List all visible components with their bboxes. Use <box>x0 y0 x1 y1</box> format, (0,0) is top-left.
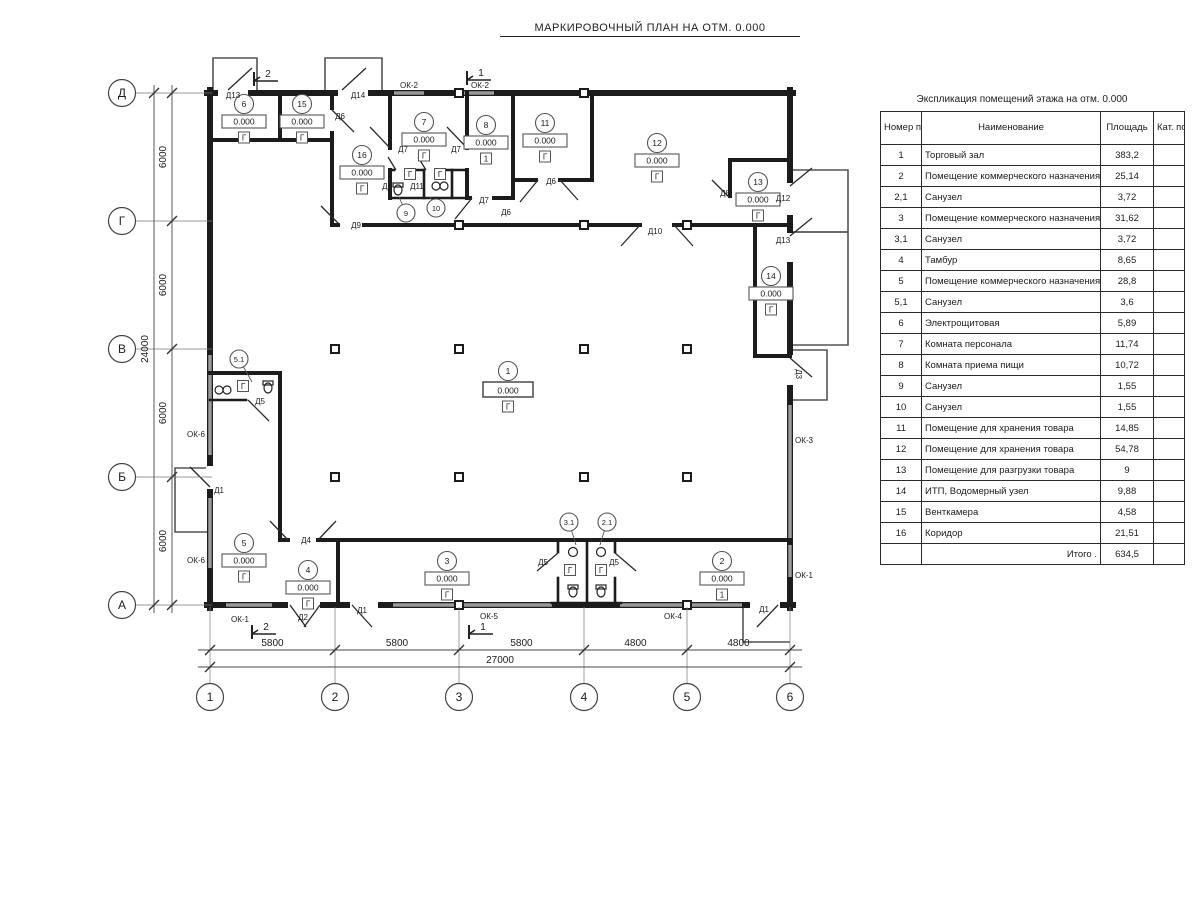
room-number: 1 <box>506 366 511 376</box>
sink-icon <box>432 182 448 190</box>
cell-area: 21,51 <box>1101 523 1154 544</box>
door-label: Д6 <box>546 177 556 186</box>
dim-text: 6000 <box>158 401 169 424</box>
door-label: Д12 <box>776 194 791 203</box>
cell-name: Помещение для разгрузки товара <box>922 460 1101 481</box>
room-number: 15 <box>297 99 307 109</box>
category-value: Г <box>599 566 604 575</box>
room-number: 12 <box>652 138 662 148</box>
cell-area: 9 <box>1101 460 1154 481</box>
door-label: Д9 <box>351 221 361 230</box>
room-marker: 10.000Г <box>483 362 533 413</box>
table-row: 8Комната приема пищи10,72 <box>881 355 1185 376</box>
table-row: 11Помещение для хранения товара14,85 <box>881 418 1185 439</box>
room-schedule: Экспликация помещений этажа на отм. 0.00… <box>880 94 1164 565</box>
dim-text: 24000 <box>140 335 151 363</box>
window-label: ОК-6 <box>187 430 206 439</box>
dim-text: 4800 <box>727 638 750 649</box>
cell-area: 383,2 <box>1101 145 1154 166</box>
table-row: 3,1Санузел3,72 <box>881 229 1185 250</box>
cell-name: Помещение для хранения товара <box>922 439 1101 460</box>
door-label: Д10 <box>648 227 663 236</box>
cell-cat <box>1154 544 1185 565</box>
cell-name: Коридор <box>922 523 1101 544</box>
interior-walls <box>210 93 790 605</box>
cell-name: Санузел <box>922 397 1101 418</box>
door-label: Д14 <box>351 91 366 100</box>
axis-label: Д <box>118 86 126 100</box>
cell-num: 6 <box>881 313 922 334</box>
category-box: Г <box>596 565 607 576</box>
cell-name: Помещение коммерческого назначения <box>922 208 1101 229</box>
room-markers: 10.000Г20.000130.000Г40.000Г50.000Г60.00… <box>222 95 793 610</box>
toilet-icon <box>596 585 606 597</box>
category-value: 1 <box>484 155 489 164</box>
room-number: 7 <box>422 117 427 127</box>
room-number: 10 <box>432 204 440 213</box>
category-value: Г <box>242 134 247 143</box>
cell-cat <box>1154 355 1185 376</box>
cell-num: 3,1 <box>881 229 922 250</box>
room-number: 16 <box>357 150 367 160</box>
sanitary-fixtures <box>215 182 606 597</box>
cell-num: 10 <box>881 397 922 418</box>
cell-num <box>881 544 922 565</box>
door-label: Д4 <box>301 536 311 545</box>
table-row: 10Санузел1,55 <box>881 397 1185 418</box>
schedule-table: Номер помещ. Наименование Площадь Кат. п… <box>880 111 1185 565</box>
cell-area: 5,89 <box>1101 313 1154 334</box>
section-number: 1 <box>478 68 484 79</box>
room-marker: 50.000Г <box>222 534 266 583</box>
cell-area: 14,85 <box>1101 418 1154 439</box>
cell-name: Комната персонала <box>922 334 1101 355</box>
elevation-value: 0.000 <box>291 117 313 127</box>
room-marker: 60.000Г <box>222 95 266 144</box>
elevation-value: 0.000 <box>497 386 519 396</box>
room-marker-small: 9 <box>397 197 415 222</box>
cell-name: Помещение коммерческого назначения <box>922 166 1101 187</box>
cell-cat <box>1154 292 1185 313</box>
section-number: 2 <box>263 622 269 633</box>
cell-cat <box>1154 187 1185 208</box>
room-number: 14 <box>766 271 776 281</box>
cell-area: 8,65 <box>1101 250 1154 271</box>
cell-area: 25,14 <box>1101 166 1154 187</box>
cell-name: Санузел <box>922 376 1101 397</box>
door-label: Д3 <box>794 369 803 379</box>
table-row: 7Комната персонала11,74 <box>881 334 1185 355</box>
cell-name: Санузел <box>922 187 1101 208</box>
axis-label: А <box>118 598 126 612</box>
category-box: Г <box>435 169 446 180</box>
category-value: 1 <box>720 591 725 600</box>
elevation-value: 0.000 <box>534 136 556 146</box>
elevation-value: 0.000 <box>475 138 497 148</box>
total-value: 634,5 <box>1101 544 1154 565</box>
table-row: 12Помещение для хранения товара54,78 <box>881 439 1185 460</box>
table-row: 2Помещение коммерческого назначения25,14 <box>881 166 1185 187</box>
axis-label: 2 <box>332 690 339 704</box>
wall-openings <box>210 93 790 605</box>
room-marker-small: 5.1 <box>230 350 252 382</box>
window-label: ОК-4 <box>664 612 683 621</box>
category-box: Г <box>405 169 416 180</box>
cell-area: 3,72 <box>1101 187 1154 208</box>
toilet-icon <box>568 585 578 597</box>
axis-label: 6 <box>787 690 794 704</box>
room-marker: 70.000Г <box>402 113 446 162</box>
elevation-value: 0.000 <box>760 289 782 299</box>
room-marker-small: 10 <box>427 197 445 217</box>
room-number: 2 <box>720 556 725 566</box>
schedule-header-row: Номер помещ. Наименование Площадь Кат. п… <box>881 112 1185 145</box>
category-value: Г <box>300 134 305 143</box>
section-number: 1 <box>480 622 486 633</box>
section-number: 2 <box>265 69 271 80</box>
axis-label: Г <box>119 214 126 228</box>
table-row: 5Помещение коммерческого назначения28,8 <box>881 271 1185 292</box>
cell-name: ИТП, Водомерный узел <box>922 481 1101 502</box>
outer-walls <box>207 90 793 608</box>
sink-icon <box>215 386 231 394</box>
cell-name: Тамбур <box>922 250 1101 271</box>
category-value: Г <box>438 170 443 179</box>
cell-area: 31,62 <box>1101 208 1154 229</box>
elevation-value: 0.000 <box>436 574 458 584</box>
cell-name: Электрощитовая <box>922 313 1101 334</box>
schedule-title: Экспликация помещений этажа на отм. 0.00… <box>880 94 1164 105</box>
cell-num: 1 <box>881 145 922 166</box>
door-label: Д8 <box>720 189 730 198</box>
category-value: Г <box>360 185 365 194</box>
category-value: Г <box>422 152 427 161</box>
window-label: ОК-5 <box>480 612 499 621</box>
cell-area: 9,88 <box>1101 481 1154 502</box>
room-marker: 80.0001 <box>464 116 508 165</box>
room-number: 13 <box>753 177 763 187</box>
window-label: ОК-2 <box>400 81 419 90</box>
dim-text: 5800 <box>261 638 284 649</box>
cell-num: 2,1 <box>881 187 922 208</box>
elevation-value: 0.000 <box>747 195 769 205</box>
table-row: 2,1Санузел3,72 <box>881 187 1185 208</box>
door-label: Д1 <box>759 605 769 614</box>
cell-cat <box>1154 397 1185 418</box>
cell-name: Санузел <box>922 229 1101 250</box>
cell-area: 28,8 <box>1101 271 1154 292</box>
cell-cat <box>1154 145 1185 166</box>
cell-area: 3,72 <box>1101 229 1154 250</box>
cell-cat <box>1154 523 1185 544</box>
door-label: Д13 <box>776 236 791 245</box>
door-label: Д5 <box>538 558 548 567</box>
room-marker: 120.000Г <box>635 134 679 183</box>
room-marker: 30.000Г <box>425 552 469 601</box>
cell-area: 10,72 <box>1101 355 1154 376</box>
col-area: Площадь <box>1101 112 1154 145</box>
cell-area: 3,6 <box>1101 292 1154 313</box>
axis-label: 1 <box>207 690 214 704</box>
table-row: 13Помещение для разгрузки товара9 <box>881 460 1185 481</box>
cell-cat <box>1154 460 1185 481</box>
room-number: 2.1 <box>602 518 612 527</box>
table-row: 3Помещение коммерческого назначения31,62 <box>881 208 1185 229</box>
toilet-icon <box>263 381 273 393</box>
cell-name: Торговый зал <box>922 145 1101 166</box>
door-label: Д7 <box>451 145 461 154</box>
cell-area: 11,74 <box>1101 334 1154 355</box>
door-leaves <box>190 68 812 627</box>
window-label: ОК-3 <box>795 436 814 445</box>
table-row: 15Венткамера4,58 <box>881 502 1185 523</box>
elevation-value: 0.000 <box>351 168 373 178</box>
category-value: Г <box>408 170 413 179</box>
room-number: 5 <box>242 538 247 548</box>
window-label: ОК-1 <box>231 615 250 624</box>
cell-cat <box>1154 481 1185 502</box>
cell-area: 54,78 <box>1101 439 1154 460</box>
category-value: Г <box>306 600 311 609</box>
room-marker: 110.000Г <box>523 114 567 163</box>
room-marker: 20.0001 <box>700 552 744 601</box>
door-label: Д11 <box>410 182 424 191</box>
room-number: 6 <box>242 99 247 109</box>
table-total-row: Итого .634,5 <box>881 544 1185 565</box>
elevation-value: 0.000 <box>711 574 733 584</box>
dim-text: 6000 <box>158 529 169 552</box>
col-category: Кат. пом. <box>1154 112 1185 145</box>
cell-area: 4,58 <box>1101 502 1154 523</box>
elevation-value: 0.000 <box>297 583 319 593</box>
table-row: 9Санузел1,55 <box>881 376 1185 397</box>
category-value: Г <box>445 591 450 600</box>
axis-label: 5 <box>684 690 691 704</box>
category-value: Г <box>756 212 761 221</box>
dim-text: 6000 <box>158 273 169 296</box>
elevation-value: 0.000 <box>233 556 255 566</box>
door-label: Д5 <box>255 397 265 406</box>
window-strips <box>210 93 790 605</box>
cell-num: 2 <box>881 166 922 187</box>
elevation-value: 0.000 <box>413 135 435 145</box>
room-number: 5.1 <box>234 355 244 364</box>
category-value: Г <box>769 306 774 315</box>
cell-num: 5 <box>881 271 922 292</box>
cell-area: 1,55 <box>1101 376 1154 397</box>
category-value: Г <box>506 403 511 412</box>
dim-text: 5800 <box>510 638 533 649</box>
cell-name: Помещение коммерческого назначения <box>922 271 1101 292</box>
cell-cat <box>1154 250 1185 271</box>
door-label: Д7 <box>479 196 489 205</box>
room-number: 11 <box>541 118 550 128</box>
cell-cat <box>1154 418 1185 439</box>
axis-label: В <box>118 342 126 356</box>
room-marker: 150.000Г <box>280 95 324 144</box>
dim-text: 5800 <box>386 638 409 649</box>
category-value: Г <box>655 173 660 182</box>
cell-cat <box>1154 334 1185 355</box>
category-box: Г <box>238 381 249 392</box>
room-number: 9 <box>404 209 408 218</box>
table-row: 4Тамбур8,65 <box>881 250 1185 271</box>
dim-text: 4800 <box>624 638 647 649</box>
drawing-sheet: МАРКИРОВОЧНЫЙ ПЛАН НА ОТМ. 0.000 <box>0 0 1200 900</box>
cell-cat <box>1154 166 1185 187</box>
door-label: Д6 <box>335 112 345 121</box>
total-label: Итого . <box>922 544 1101 565</box>
category-value: Г <box>242 573 247 582</box>
door-label: Д2 <box>298 613 308 622</box>
cell-num: 3 <box>881 208 922 229</box>
cell-num: 12 <box>881 439 922 460</box>
axis-label: 4 <box>581 690 588 704</box>
cell-name: Венткамера <box>922 502 1101 523</box>
room-number: 3 <box>445 556 450 566</box>
door-label: Д6 <box>501 208 511 217</box>
room-number: 8 <box>484 120 489 130</box>
axis-label: 3 <box>456 690 463 704</box>
cell-cat <box>1154 271 1185 292</box>
cell-cat <box>1154 376 1185 397</box>
cell-num: 7 <box>881 334 922 355</box>
toilet-icon <box>393 183 403 195</box>
elevation-value: 0.000 <box>646 156 668 166</box>
cell-name: Комната приема пищи <box>922 355 1101 376</box>
dim-text: 6000 <box>158 145 169 168</box>
category-value: Г <box>568 566 573 575</box>
table-row: 14ИТП, Водомерный узел9,88 <box>881 481 1185 502</box>
door-label: Д7 <box>398 145 408 154</box>
category-box: Г <box>565 565 576 576</box>
cell-cat <box>1154 229 1185 250</box>
cell-num: 14 <box>881 481 922 502</box>
cell-num: 15 <box>881 502 922 523</box>
table-row: 16Коридор21,51 <box>881 523 1185 544</box>
door-label: Д5 <box>609 558 619 567</box>
door-label: Д1 <box>214 486 224 495</box>
door-label: Д13 <box>226 91 241 100</box>
col-name: Наименование <box>922 112 1101 145</box>
door-label: Д1 <box>357 606 367 615</box>
window-label: ОК-1 <box>795 571 814 580</box>
cell-area: 1,55 <box>1101 397 1154 418</box>
category-value: Г <box>543 153 548 162</box>
room-number: 4 <box>306 565 311 575</box>
cell-cat <box>1154 439 1185 460</box>
cell-num: 4 <box>881 250 922 271</box>
table-row: 5,1Санузел3,6 <box>881 292 1185 313</box>
axis-label: Б <box>118 470 126 484</box>
door-label: Д5 <box>382 182 392 191</box>
cell-num: 8 <box>881 355 922 376</box>
room-marker: 160.000Г <box>340 146 384 195</box>
cell-name: Помещение для хранения товара <box>922 418 1101 439</box>
cell-cat <box>1154 502 1185 523</box>
cell-num: 9 <box>881 376 922 397</box>
dim-text: 27000 <box>486 655 514 666</box>
elevation-value: 0.000 <box>233 117 255 127</box>
room-marker: 130.000Г <box>736 173 780 222</box>
section-marker: 1 <box>469 622 493 639</box>
table-row: 1Торговый зал383,2 <box>881 145 1185 166</box>
cell-num: 5,1 <box>881 292 922 313</box>
section-marker: 2 <box>252 622 276 639</box>
window-label: ОК-6 <box>187 556 206 565</box>
cell-cat <box>1154 208 1185 229</box>
cell-num: 13 <box>881 460 922 481</box>
cell-num: 11 <box>881 418 922 439</box>
cell-name: Санузел <box>922 292 1101 313</box>
room-number: 3.1 <box>564 518 574 527</box>
col-number: Номер помещ. <box>881 112 922 145</box>
cell-num: 16 <box>881 523 922 544</box>
cell-cat <box>1154 313 1185 334</box>
category-value: Г <box>241 382 246 391</box>
table-row: 6Электрощитовая5,89 <box>881 313 1185 334</box>
window-label: ОК-2 <box>471 81 490 90</box>
